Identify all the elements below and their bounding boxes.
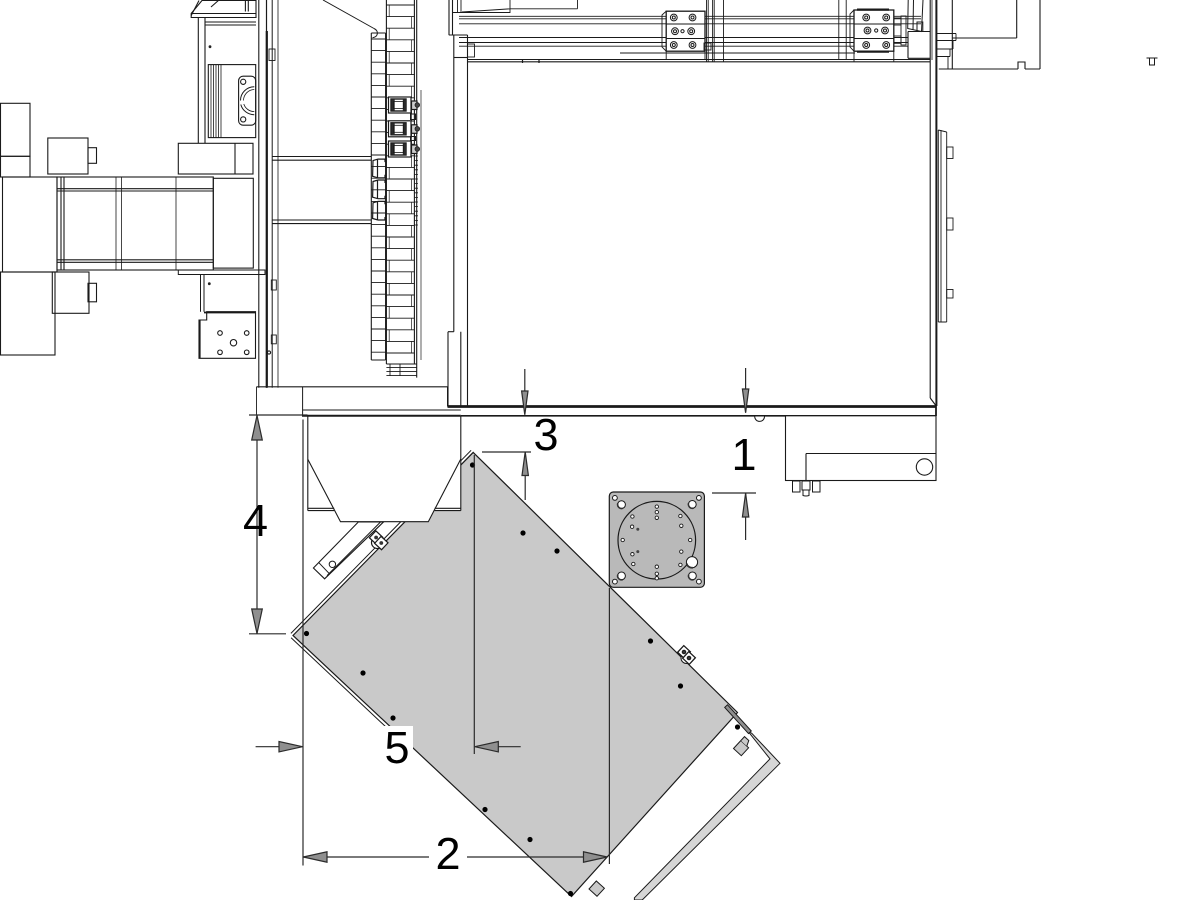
svg-text:3: 3: [533, 409, 558, 460]
svg-text:4: 4: [243, 495, 268, 546]
svg-text:1: 1: [731, 429, 756, 480]
svg-text:2: 2: [435, 828, 460, 879]
svg-text:5: 5: [384, 722, 409, 773]
